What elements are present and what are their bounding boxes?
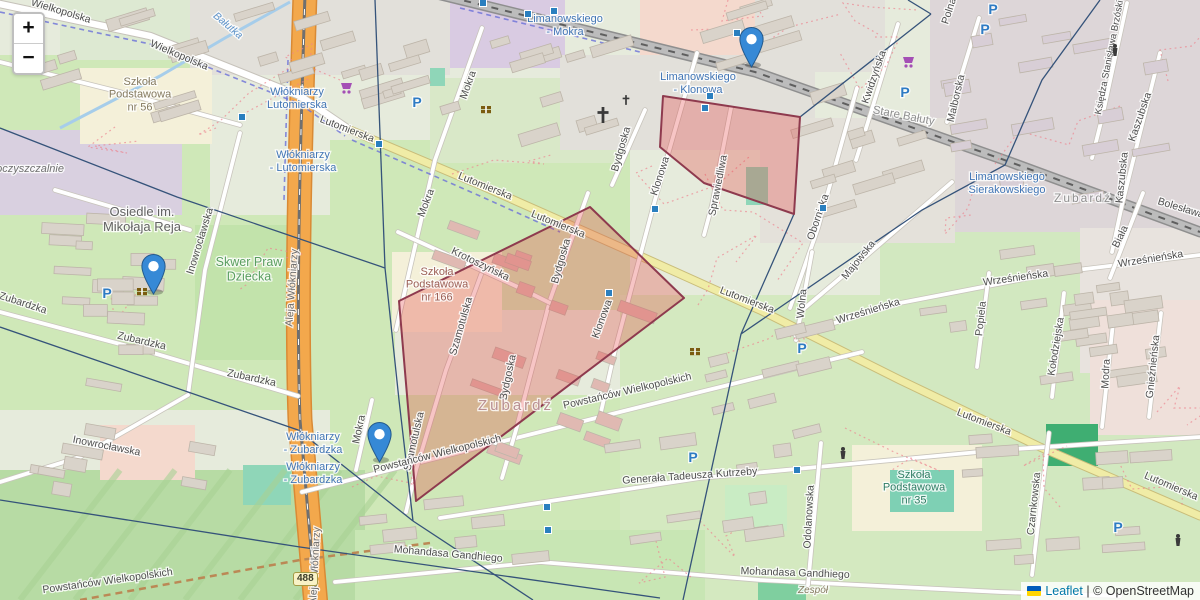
street-label: Mokra <box>350 414 368 445</box>
street-label: Popiela <box>973 300 989 336</box>
street-label: Mokra <box>458 69 479 101</box>
voronoi-cell-line <box>908 0 931 14</box>
transit-stop-icon <box>707 93 714 100</box>
transit-stop-icon <box>702 105 709 112</box>
street-label: Lutomierska <box>318 113 376 145</box>
ukraine-flag-icon <box>1027 586 1041 596</box>
street-label: Kaszubska <box>1126 91 1154 144</box>
map-marker[interactable] <box>367 422 392 463</box>
transit-stop-icon <box>794 467 801 474</box>
street-label: Majowska <box>839 238 878 282</box>
place-label: oczyszczalnie <box>0 163 64 175</box>
leaflet-link[interactable]: Leaflet <box>1045 584 1083 598</box>
transit-stop-label: WłókniarzyLutomierska <box>267 86 328 111</box>
voronoi-cell-line <box>0 327 413 521</box>
monument-icon <box>841 447 846 459</box>
street-label: Kwidzyńska <box>859 49 888 105</box>
attribution-separator: | <box>1083 584 1093 598</box>
transit-stop-icon <box>545 527 552 534</box>
street-label: Kołodziejska <box>1045 316 1066 376</box>
osm-attribution-link[interactable]: © OpenStreetMap <box>1093 584 1194 598</box>
street-label: Stare Bałuty <box>872 104 936 128</box>
street-label: Kaszubska <box>1113 151 1130 203</box>
street-label: Biała <box>1110 223 1131 249</box>
street-label: Lutomierska <box>955 406 1013 438</box>
transit-stop-icon <box>652 206 659 213</box>
street-label: Polna <box>939 0 959 26</box>
place-label: Osiedle im.Mikołaja Reja <box>103 204 182 234</box>
supermarket-cart-icon <box>903 57 914 68</box>
parking-icon: P <box>412 94 421 110</box>
street-label: Powstańców Wielkopolskich <box>42 566 174 596</box>
street-label: Odolanowska <box>801 485 816 549</box>
street-label: Gnieźnieńska <box>1144 334 1163 399</box>
transit-stop-icon <box>551 8 558 15</box>
library-book-icon <box>481 106 491 113</box>
place-label: Skwer PrawDziecka <box>216 255 284 283</box>
transit-stop-icon <box>525 11 532 18</box>
street-label: Mohandasa Gandhiego <box>740 565 850 581</box>
street-label: Aleja Włókniarzy <box>283 248 300 327</box>
supermarket-cart-icon <box>341 83 352 94</box>
transit-stop-icon <box>606 290 613 297</box>
street-label: Obornicka <box>805 192 832 241</box>
place-label: Zubardź <box>478 397 554 414</box>
street-label: Wolna <box>795 288 810 319</box>
map-overlays: WielkopolskaWielkopolskaLutomierskaLutom… <box>0 0 1200 600</box>
church-cross-icon <box>597 107 608 123</box>
map-marker[interactable] <box>141 254 166 295</box>
street-label: Księdza Stanisława Brzóski <box>1093 0 1126 116</box>
zoom-in-button[interactable]: + <box>14 14 43 43</box>
street-label: Malborska <box>945 73 968 123</box>
voronoi-cell-line <box>375 0 385 268</box>
church-cross-icon <box>623 95 630 105</box>
zoom-out-button[interactable]: − <box>14 44 43 73</box>
parking-icon: P <box>988 1 997 17</box>
place-label: Zubardź <box>1054 191 1112 205</box>
parking-icon: P <box>980 21 989 37</box>
highlighted-zone-polygon[interactable] <box>660 96 800 214</box>
parking-icon: P <box>900 84 909 100</box>
street-label: Inowrocławska <box>72 434 142 459</box>
monument-icon <box>1176 534 1181 546</box>
place-label: Zespół <box>797 585 829 596</box>
road-shield: 488 <box>293 572 318 586</box>
map[interactable]: WielkopolskaWielkopolskaLutomierskaLutom… <box>0 0 1200 600</box>
street-label: Wielkopolska <box>148 38 210 73</box>
transit-stop-label: LimanowskiegoSierakowskiego <box>968 171 1045 196</box>
street-label: Lutomierska <box>718 284 776 316</box>
parking-icon: P <box>797 340 806 356</box>
street-label: Aleja Włókniarzy <box>307 526 323 600</box>
parking-icon: P <box>688 449 697 465</box>
zoom-control: + − <box>12 12 45 75</box>
parking-icon: P <box>1113 519 1122 535</box>
transit-stop-icon <box>480 0 487 7</box>
street-label: Zubardzka <box>226 367 277 389</box>
stream-label: Bałutka <box>211 10 246 42</box>
street-label: Czarnkowska <box>1025 472 1044 536</box>
street-label: Klonowa <box>648 155 672 197</box>
street-label: Zubardzka <box>0 290 49 317</box>
place-label: SzkołaPodstawowanr 56 <box>109 76 172 113</box>
transit-stop-label: Limanowskiego- Klonowa <box>660 71 736 96</box>
street-label: Bolesława Limanowskiego <box>1156 195 1200 243</box>
transit-stop-label: Włókniarzy- Zubardzka <box>284 461 344 486</box>
transit-stop-icon <box>239 114 246 121</box>
street-label: Modra <box>1099 359 1113 390</box>
parking-icon: P <box>102 285 111 301</box>
street-label: Mohandasa Gandhiego <box>393 543 503 564</box>
street-label: Zubardzka <box>116 330 167 353</box>
transit-stop-label: Limanowskiego- Mokra <box>527 13 603 38</box>
street-label: Wrześnieńska <box>982 267 1049 288</box>
library-book-icon <box>690 348 700 355</box>
street-label: Wrześnieńska <box>835 296 902 327</box>
transit-stop-label: Włókniarzy- Lutomierska <box>270 149 338 174</box>
transit-stop-icon <box>376 141 383 148</box>
street-label: Mokra <box>415 187 437 219</box>
street-label: Inowrocławska <box>184 206 216 276</box>
street-label: Generała Tadeusza Kutrzeby <box>622 465 758 486</box>
map-marker[interactable] <box>739 27 764 68</box>
street-label: Bydgoska <box>609 125 633 173</box>
street-label: Wrześnieńska <box>1117 248 1184 270</box>
transit-stop-label: Włókniarzy- Zubardzka <box>284 431 344 456</box>
place-label: SzkołaPodstawowanr 35 <box>883 469 946 506</box>
transit-stop-icon <box>820 205 827 212</box>
transit-stop-icon <box>544 504 551 511</box>
attribution-bar: Leaflet | © OpenStreetMap <box>1021 582 1200 600</box>
street-label: Lutomierska <box>456 170 514 203</box>
street-label: Lutomierska <box>1142 470 1199 503</box>
